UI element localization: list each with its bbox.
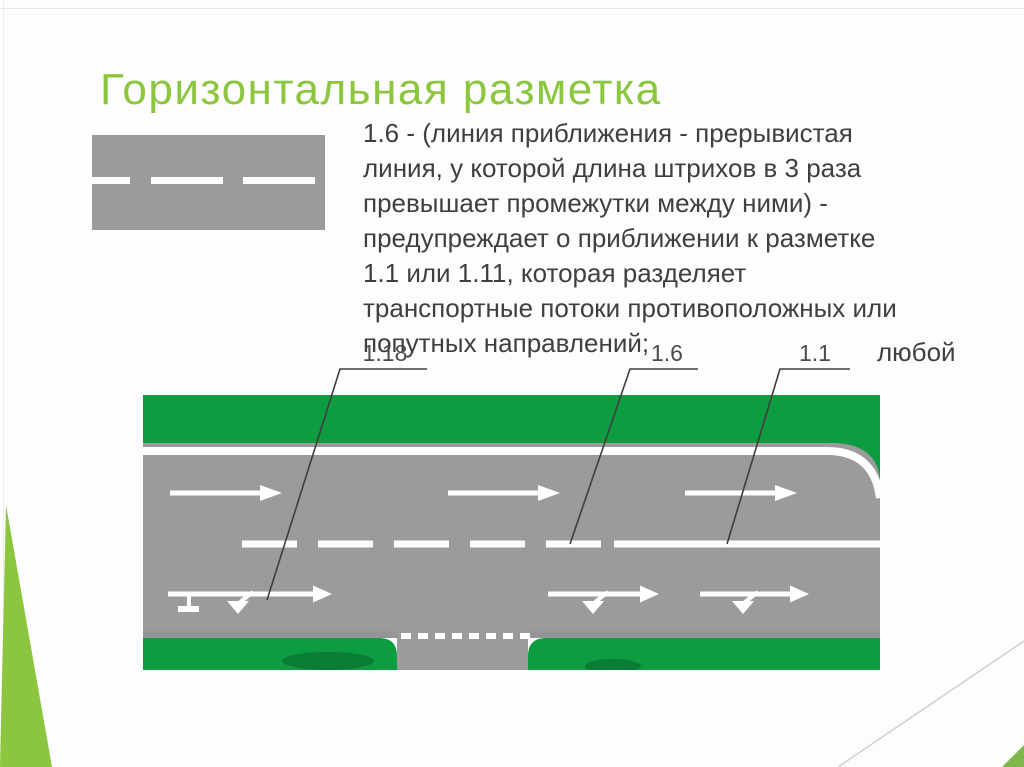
diagram-callout-labels: 1.18 1.6 1.1 [363,340,831,366]
slide-top-border [0,8,1024,9]
label-1-1: 1.1 [799,340,831,366]
sample-dashed-line [92,177,315,184]
label-1-18: 1.18 [363,340,408,366]
overflow-text-fragment: любой [877,337,956,368]
road-diagram: 1.18 1.6 1.1 [143,330,880,670]
diagram-center-line [242,541,880,548]
corner-wedge-bottom-left [0,505,60,767]
corner-decoration-bottom-right [820,630,1024,767]
diagram-bush-left [282,652,374,670]
diagonal-divider-line [838,641,1024,767]
marking-1-6-description: 1.6 - (линия приближения - прерывистая л… [363,116,1003,361]
marking-1-6-sample-image [92,135,325,230]
diagram-solid-line-1-1 [614,541,880,548]
corner-triangle [1002,745,1024,767]
label-1-6: 1.6 [651,340,683,366]
page-title: Горизонтальная разметка [100,65,662,115]
